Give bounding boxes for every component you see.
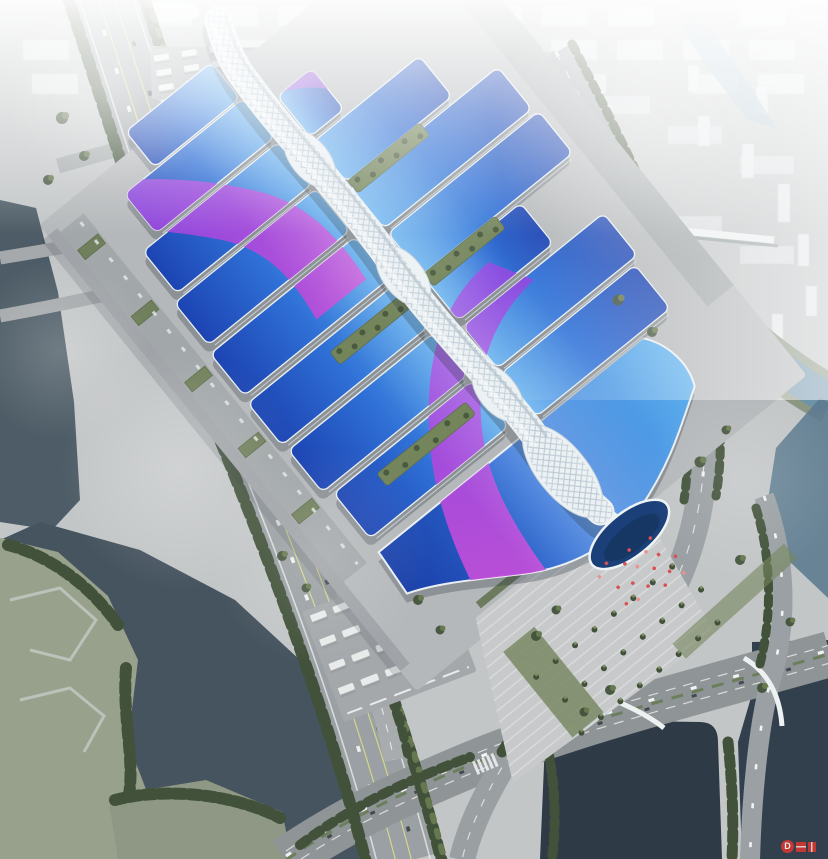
haze-patch [300, 90, 540, 330]
tree-top [610, 685, 616, 691]
watermark-logo: D [781, 840, 816, 853]
aerial-render-stage: D [0, 0, 828, 859]
tree-top [790, 618, 795, 623]
tree-top [584, 708, 589, 713]
watermark-glyph [796, 842, 806, 852]
aerial-render [0, 0, 828, 859]
haze-patch [210, 446, 430, 666]
watermark-glyph [808, 842, 816, 852]
tree-top [762, 683, 768, 689]
tree-top [556, 606, 561, 611]
park-tree-row [125, 668, 130, 800]
tree-top [440, 626, 445, 631]
tree-top [536, 631, 542, 637]
pond-east-trees [728, 742, 733, 858]
watermark-badge: D [781, 840, 794, 853]
